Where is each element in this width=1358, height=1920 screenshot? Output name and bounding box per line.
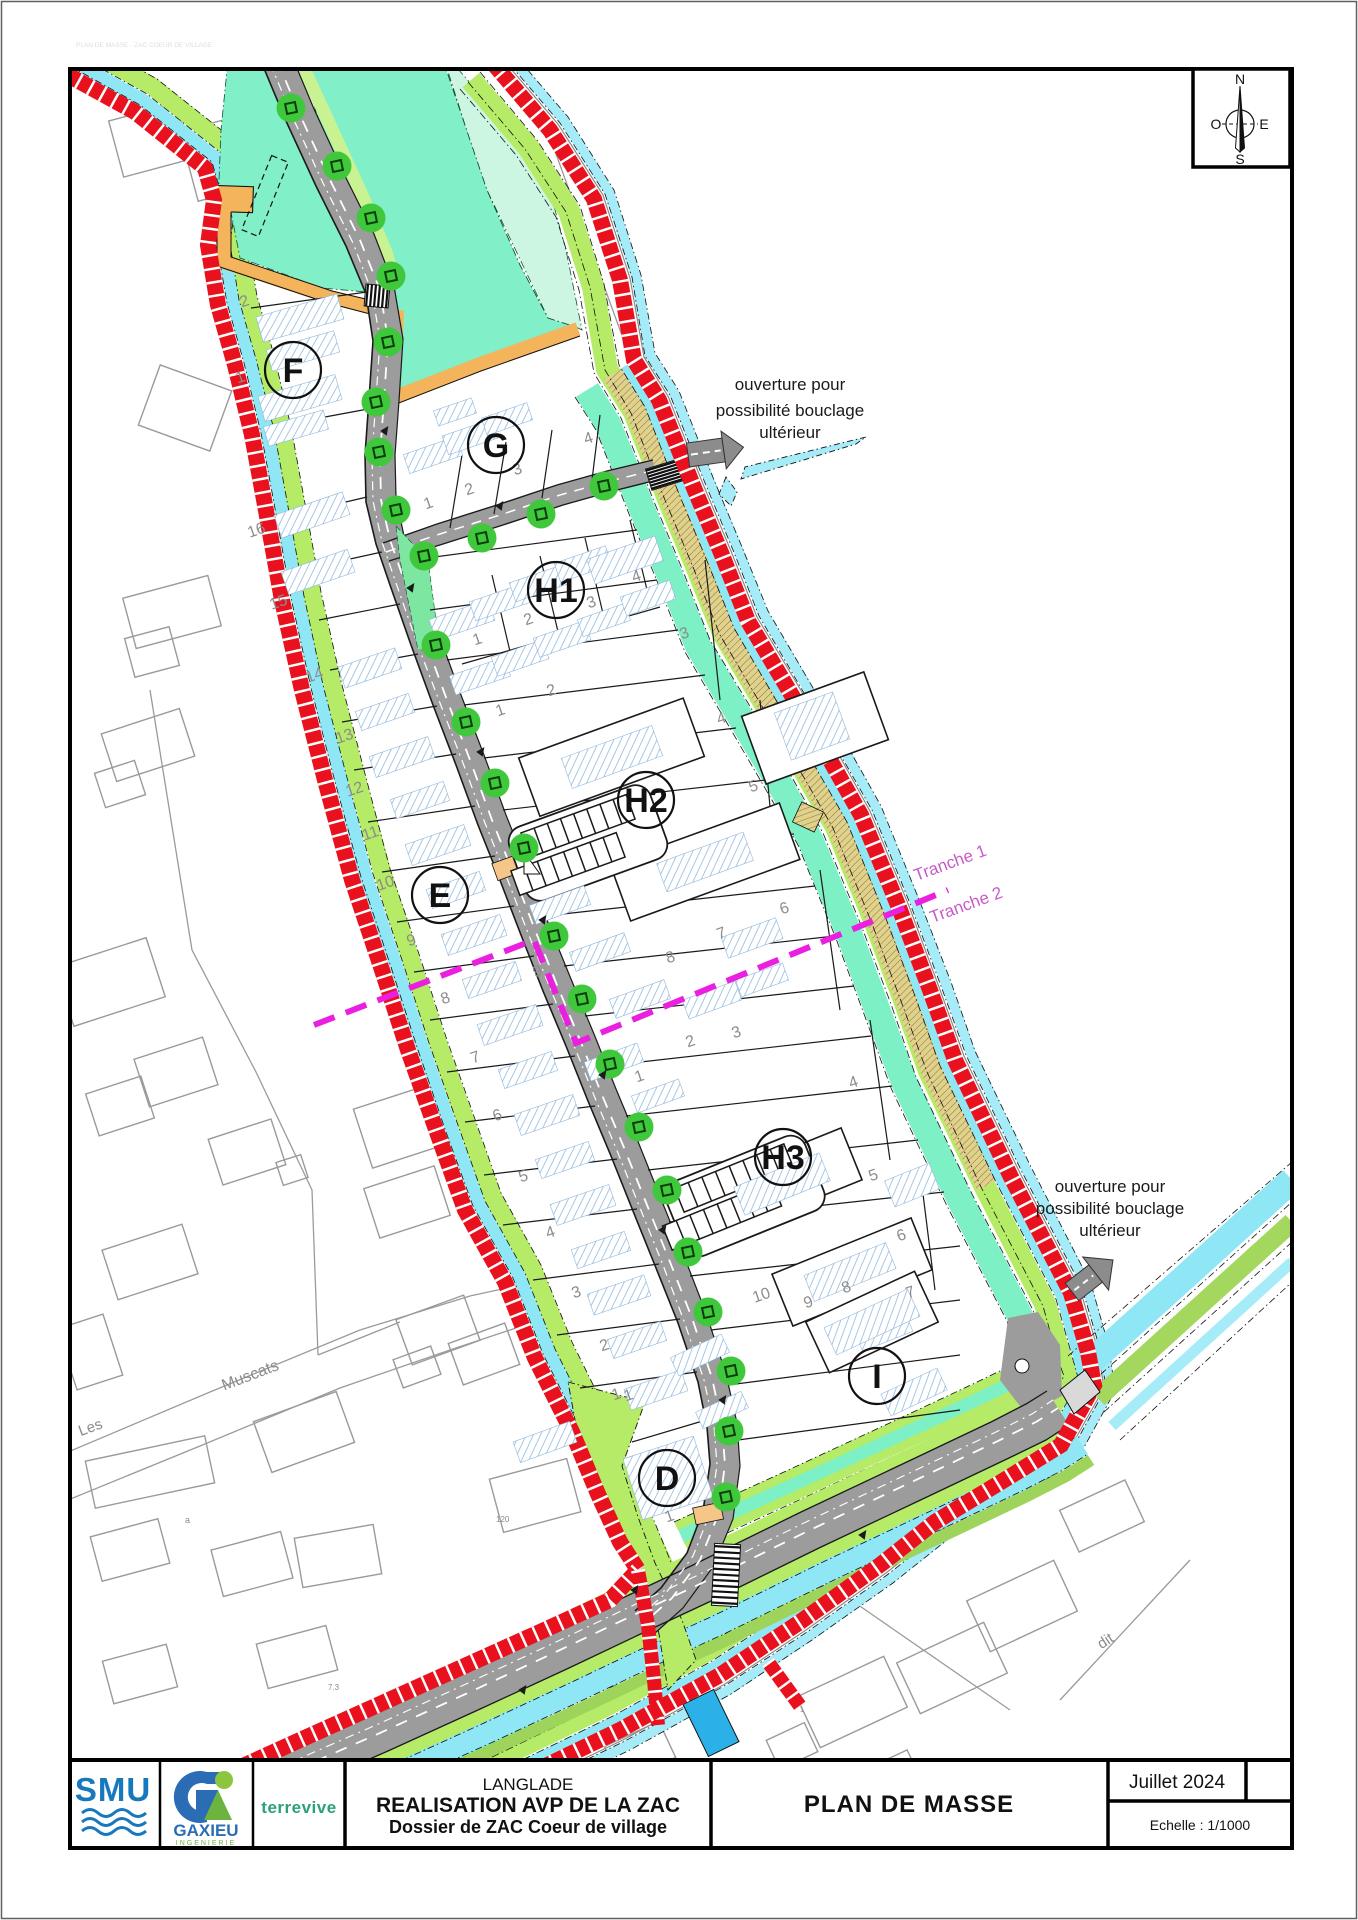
- svg-text:LANGLADE: LANGLADE: [483, 1775, 574, 1794]
- svg-text:7.3: 7.3: [328, 1683, 340, 1692]
- svg-text:S: S: [1235, 151, 1244, 167]
- svg-text:possibilité bouclage: possibilité bouclage: [1036, 1199, 1184, 1218]
- svg-text:possibilité bouclage: possibilité bouclage: [716, 401, 864, 420]
- svg-text:PLAN DE MASSE: PLAN DE MASSE: [804, 1791, 1014, 1818]
- svg-text:E: E: [1259, 116, 1268, 132]
- svg-text:PLAN DE MASSE - ZAC COEUR DE V: PLAN DE MASSE - ZAC COEUR DE VILLAGE: [76, 42, 213, 49]
- svg-text:ultérieur: ultérieur: [1079, 1221, 1141, 1240]
- svg-text:GAXIEU: GAXIEU: [173, 1821, 238, 1840]
- svg-text:Echelle : 1/1000: Echelle : 1/1000: [1150, 1817, 1251, 1833]
- svg-text:Dossier de ZAC Coeur de villag: Dossier de ZAC Coeur de village: [389, 1817, 667, 1837]
- svg-text:H1: H1: [534, 572, 577, 610]
- svg-text:120: 120: [496, 1515, 510, 1524]
- svg-text:terrevive: terrevive: [261, 1798, 336, 1817]
- svg-text:I: I: [872, 1358, 881, 1396]
- svg-text:O: O: [1211, 116, 1222, 132]
- svg-text:1: 1: [800, 1707, 804, 1714]
- svg-text:INGENIERIE: INGENIERIE: [176, 1840, 236, 1847]
- svg-text:E: E: [429, 877, 452, 915]
- svg-text:N: N: [1235, 71, 1245, 87]
- svg-text:Juillet 2024: Juillet 2024: [1129, 1772, 1226, 1793]
- svg-text:ouverture pour: ouverture pour: [1055, 1177, 1166, 1196]
- svg-text:F: F: [283, 352, 304, 390]
- svg-text:D: D: [655, 1460, 680, 1498]
- svg-text:SMU: SMU: [75, 1771, 151, 1808]
- svg-text:ouverture pour: ouverture pour: [735, 375, 846, 394]
- svg-text:H2: H2: [624, 782, 667, 820]
- svg-text:G: G: [483, 427, 509, 465]
- svg-text:a: a: [185, 1515, 190, 1525]
- svg-text:H3: H3: [761, 1139, 804, 1177]
- svg-text:REALISATION AVP DE LA ZAC: REALISATION AVP DE LA ZAC: [376, 1794, 680, 1817]
- svg-text:ultérieur: ultérieur: [759, 423, 821, 442]
